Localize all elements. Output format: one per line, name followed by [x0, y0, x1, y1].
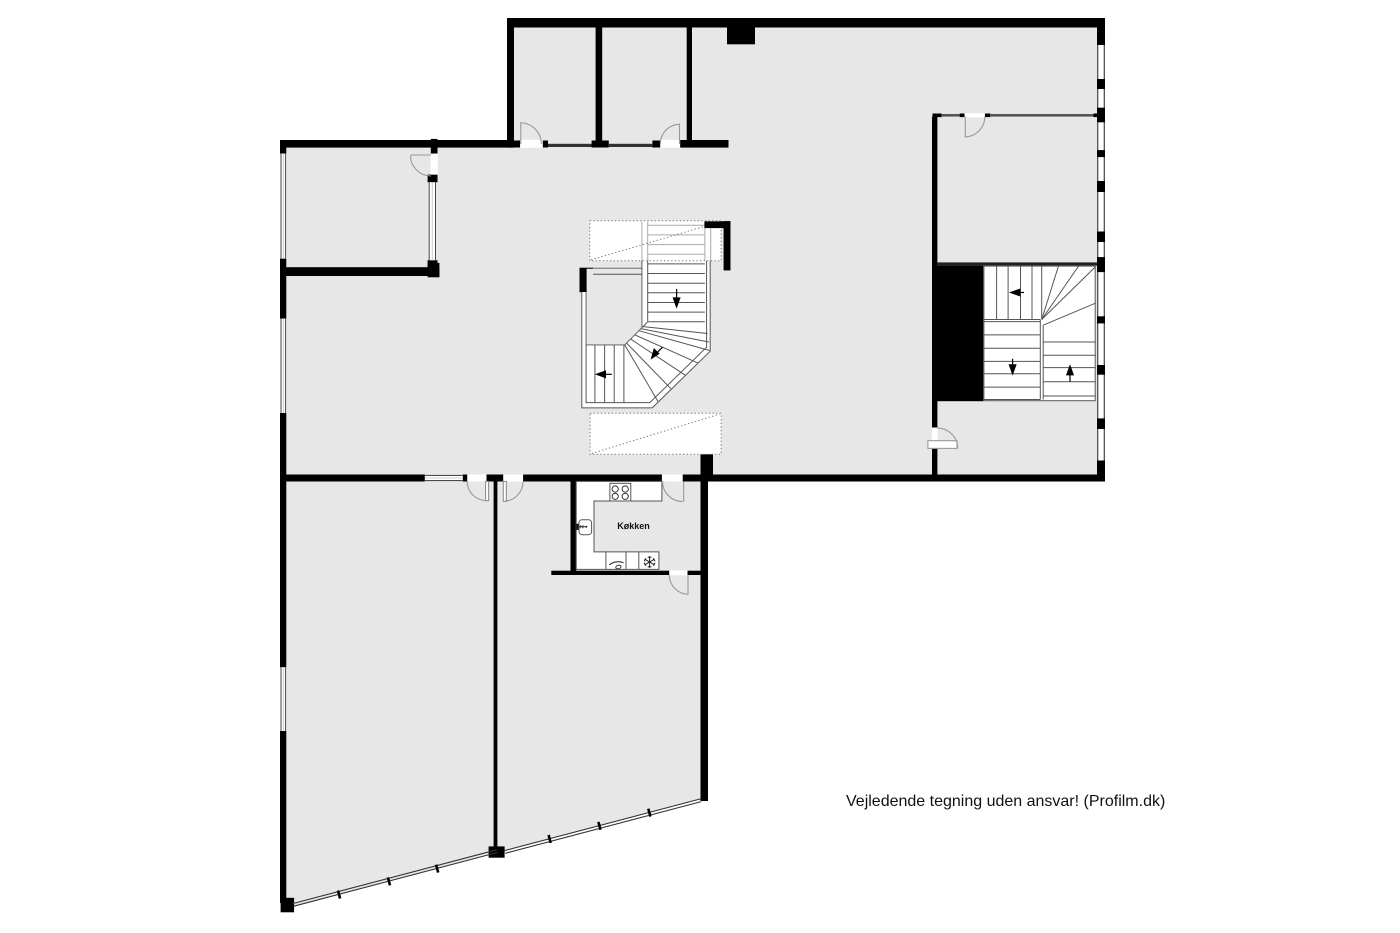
svg-text:Køkken: Køkken [617, 521, 650, 531]
svg-text:Vejledende tegning uden ansvar: Vejledende tegning uden ansvar! (Profilm… [846, 793, 1165, 810]
